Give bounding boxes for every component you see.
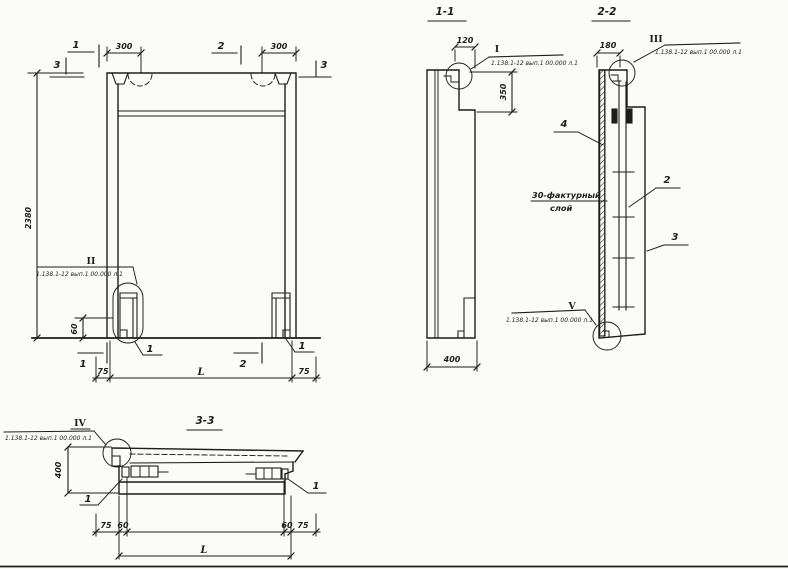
detail-roman-label: II [87,256,96,267]
dim-text: 350 [499,83,508,100]
detail-roman-label: IV [74,418,86,429]
series-reference: 1.138.1-12 вып.1 00.000 л.1 [506,317,593,324]
dim-text: 400 [54,461,63,479]
series-reference: 1.138.1-12 вып.1 00.000 л.1 [655,49,742,56]
item-number: 1 [147,344,154,355]
section-title: 1-1 [436,6,455,18]
item-number: 1 [299,341,306,352]
item-number: 1 [85,494,92,505]
note-line-1: 30-фактурный [532,190,601,200]
section-mark-label: 1 [80,359,87,370]
item-number: 1 [313,481,320,492]
dim-text: 180 [600,41,617,50]
dim-text: 120 [457,36,474,45]
series-reference: 1.138.1-12 вып.1 00.000 л.1 [5,435,92,442]
dim-text: 75 [100,521,112,530]
section-mark-label: 3 [54,60,61,71]
item-number: 3 [672,232,679,243]
section-mark-label: 2 [218,41,225,52]
section-title: 2-2 [598,6,617,18]
series-reference: 1.138.1-12 вып.1 00.000 л.1 [491,60,578,67]
dim-text: 60 [117,521,129,530]
panel-working-drawing: 1 2 3 3 300 [0,0,788,569]
dim-text: 75 [297,521,309,530]
dim-text: 75 [97,367,109,376]
dim-text: 75 [298,367,310,376]
textured-layer-hatch [600,70,605,336]
clamp-nut-right [627,109,632,123]
item-number: 2 [664,175,671,186]
detail-roman-label: III [649,34,663,45]
section-mark-label: 2 [240,359,247,370]
dim-text: 300 [116,42,133,51]
item-number: 4 [560,119,568,130]
dim-text: L [199,545,207,556]
series-reference: 1.138.1-12 вып.1 00.000 л.1 [36,271,123,278]
dim-text: 60 [281,521,293,530]
dim-text: 400 [443,355,461,364]
section-mark-label: 1 [73,40,80,51]
dim-text: L [196,367,204,378]
dim-text: 60 [70,323,79,335]
dim-text: 2380 [24,206,33,229]
section-title: 3-3 [196,415,215,427]
clamp-nut-left [612,109,617,123]
detail-roman-label: I [495,44,500,55]
note-line-2: слой [550,203,572,213]
dim-text: 300 [271,42,288,51]
section-mark-label: 3 [321,60,328,71]
